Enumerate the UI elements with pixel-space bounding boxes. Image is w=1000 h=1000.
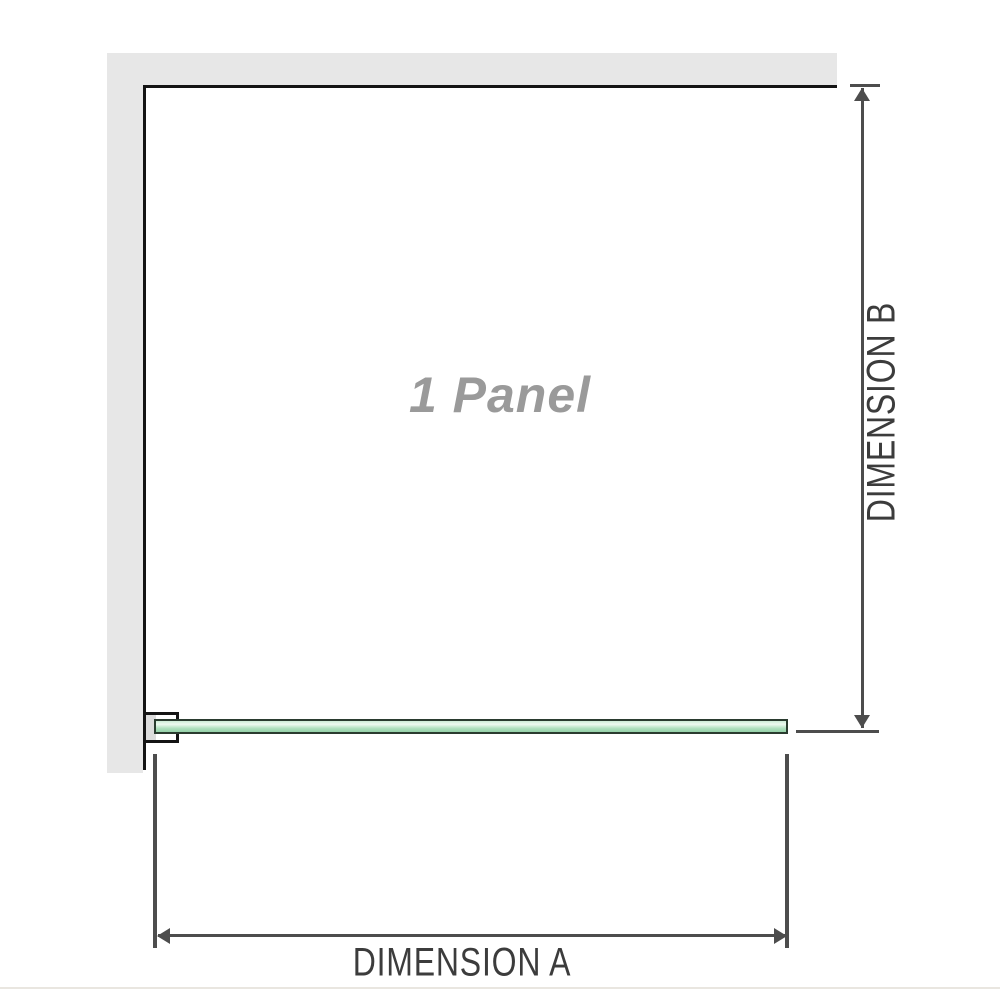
arrow-down-icon: [854, 715, 870, 728]
wall-top-band: [107, 53, 837, 85]
panel-outline-top: [143, 85, 837, 88]
arrow-left-icon: [157, 928, 170, 944]
dimension-a-line: [158, 934, 787, 937]
arrow-up-icon: [854, 88, 870, 101]
footer-divider: [0, 987, 1000, 989]
dimension-a-extension-right: [785, 754, 789, 948]
glass-panel-bar: [154, 719, 788, 734]
dimension-a-extension-left: [153, 754, 157, 948]
dimension-b-label: DIMENSION B: [860, 302, 905, 522]
dimension-a-label: DIMENSION A: [353, 941, 572, 986]
dimension-b-tick-bottom: [796, 730, 879, 733]
arrow-right-icon: [774, 928, 787, 944]
panel-dimension-diagram: 1 Panel DIMENSION B DIMENSION A: [0, 0, 1000, 1000]
wall-side-band: [107, 53, 143, 773]
dimension-b-tick-top: [850, 84, 880, 87]
panel-count-label: 1 Panel: [409, 366, 591, 424]
panel-outline-left: [143, 85, 146, 770]
